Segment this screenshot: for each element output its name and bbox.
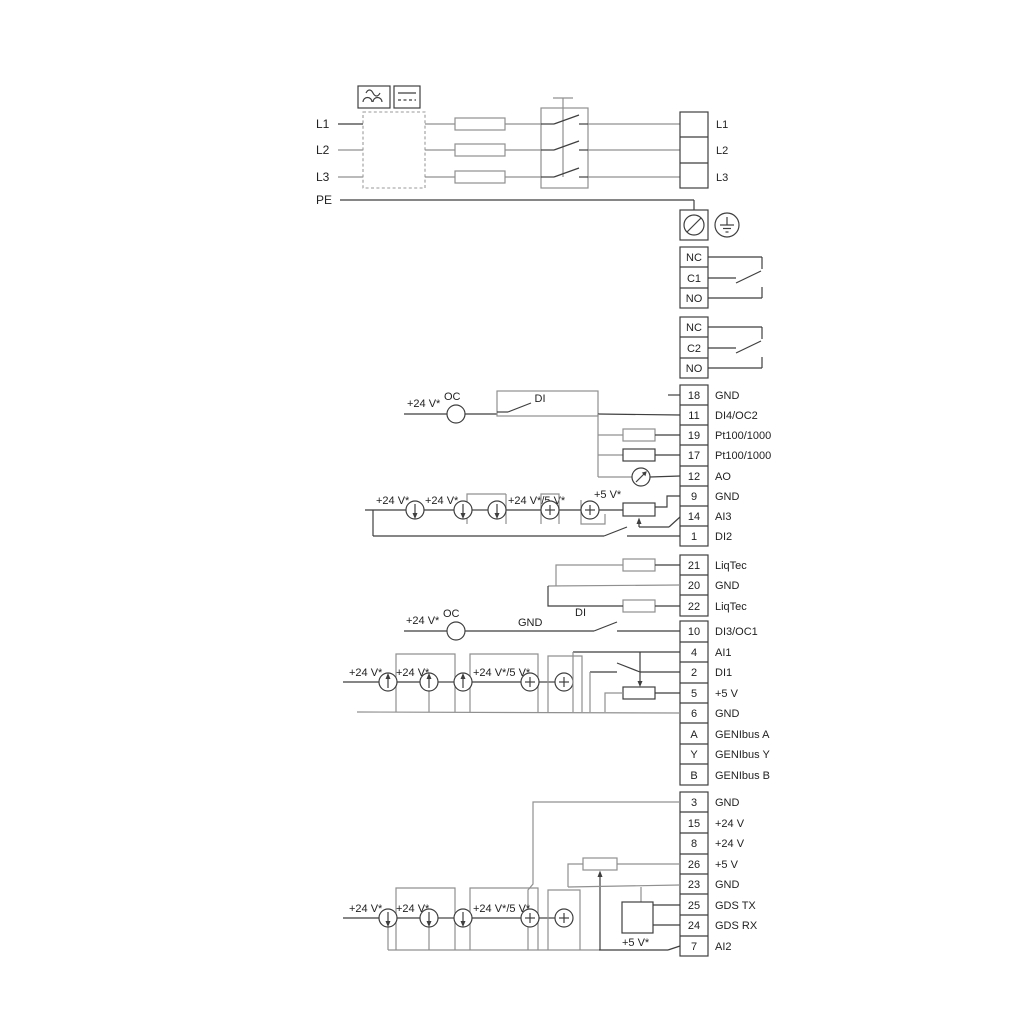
terminal-label: DI4/OC2 — [715, 410, 758, 422]
terminal-row: 24GDS RX — [688, 920, 758, 932]
current-source-icon — [454, 501, 472, 519]
terminal-id: 18 — [688, 390, 700, 402]
voltage-source-icon — [521, 673, 539, 691]
terminal-id: 5 — [691, 688, 697, 700]
open-collector-icon — [447, 622, 465, 640]
terminal-id: 19 — [688, 430, 700, 442]
terminal-id: 2 — [691, 667, 697, 679]
pe-terminal-icon — [680, 210, 708, 240]
input-label-pe: PE — [316, 193, 332, 207]
terminal-id: 24 — [688, 920, 700, 932]
relay1-nc: NC — [686, 252, 702, 264]
terminal-id: 25 — [688, 900, 700, 912]
input-label-l3: L3 — [316, 170, 330, 184]
terminal-label: GND — [715, 390, 740, 402]
terminal-label: +5 V — [715, 688, 739, 700]
terminal-id: 21 — [688, 560, 700, 572]
terminal-label: GND — [715, 797, 740, 809]
terminal-label: AI3 — [715, 511, 732, 523]
current-source-icon — [379, 909, 397, 927]
di3-di-label: DI — [575, 607, 586, 619]
terminal-label: Pt100/1000 — [715, 430, 771, 442]
gds-sensor-box — [622, 902, 653, 933]
di4-v24-label: +24 V* — [407, 398, 441, 410]
terminal-label: +5 V — [715, 859, 739, 871]
relay1-no: NO — [686, 293, 703, 305]
current-source-icon — [454, 909, 472, 927]
terminal-label: DI1 — [715, 667, 732, 679]
terminal-label: AI2 — [715, 941, 732, 953]
voltage-source-icon — [541, 501, 559, 519]
ai2-v5-label: +5 V* — [622, 937, 650, 949]
terminal-id: 26 — [688, 859, 700, 871]
terminal-id: 1 — [691, 531, 697, 543]
terminal-id: 4 — [691, 647, 697, 659]
terminal-row: 21LiqTec — [688, 560, 747, 572]
terminal-label: GDS TX — [715, 900, 756, 912]
background — [0, 0, 1024, 1024]
ac-symbol-icon — [358, 86, 390, 108]
ai3-v5-label: +5 V* — [594, 489, 622, 501]
terminal-label: Pt100/1000 — [715, 450, 771, 462]
relay1-c1: C1 — [687, 273, 701, 285]
voltage-source-icon — [521, 909, 539, 927]
terminal-id: 23 — [688, 879, 700, 891]
voltage-source-icon — [555, 673, 573, 691]
terminal-label: AI1 — [715, 647, 732, 659]
power-terminal-block: L1 L2 L3 — [680, 112, 728, 188]
contactor-icon — [541, 98, 588, 188]
gauge-icon — [632, 468, 650, 486]
terminal-id: 12 — [688, 471, 700, 483]
current-source-icon — [488, 501, 506, 519]
current-source-icon — [379, 673, 397, 691]
output-label-l2: L2 — [716, 145, 728, 157]
terminal-id: 15 — [688, 818, 700, 830]
terminal-label: GDS RX — [715, 920, 758, 932]
dc-symbol-icon — [394, 86, 420, 108]
terminal-label: AO — [715, 471, 731, 483]
voltage-source-icon — [581, 501, 599, 519]
terminal-id: 17 — [688, 450, 700, 462]
terminal-id: 3 — [691, 797, 697, 809]
ai3-v24-label: +24 V* — [376, 495, 410, 507]
relay2-no: NO — [686, 363, 703, 375]
resistor-icon — [623, 600, 655, 612]
terminal-label: GND — [715, 580, 740, 592]
output-label-l3: L3 — [716, 172, 728, 184]
di3-gnd-label: GND — [518, 617, 543, 629]
terminal-label: GND — [715, 708, 740, 720]
terminal-label: LiqTec — [715, 601, 747, 613]
terminal-label: +24 V — [715, 838, 745, 850]
di3-v24-label: +24 V* — [406, 615, 440, 627]
terminal-label: GND — [715, 879, 740, 891]
terminal-label: GENIbus Y — [715, 749, 770, 761]
input-label-l1: L1 — [316, 117, 330, 131]
relay2-nc: NC — [686, 322, 702, 334]
di3-oc-label: OC — [443, 608, 460, 620]
earth-ground-icon — [715, 213, 739, 237]
terminal-id: B — [690, 770, 697, 782]
resistor-icon — [623, 559, 655, 571]
potentiometer-icon — [623, 687, 655, 699]
input-label-l2: L2 — [316, 143, 330, 157]
relay2-c2: C2 — [687, 343, 701, 355]
terminal-label: GENIbus B — [715, 770, 770, 782]
terminal-id: 20 — [688, 580, 700, 592]
terminal-row: 25GDS TX — [688, 900, 757, 912]
terminal-id: 11 — [688, 410, 699, 422]
terminal-label: +24 V — [715, 818, 745, 830]
terminal-id: 22 — [688, 601, 700, 613]
terminal-label: GENIbus A — [715, 729, 770, 741]
ai3-v24-label: +24 V* — [425, 495, 459, 507]
ai2-v24-label: +24 V* — [349, 903, 383, 915]
di4-di-label: DI — [535, 393, 546, 405]
current-source-icon — [454, 673, 472, 691]
wiring-diagram-svg: L1 L2 L3 PE — [0, 0, 1024, 1024]
fuse-icon — [455, 144, 505, 156]
open-collector-icon — [447, 405, 465, 423]
current-source-icon — [420, 673, 438, 691]
di4-oc-label: OC — [444, 391, 461, 403]
terminal-id: 14 — [688, 511, 700, 523]
terminal-id: 9 — [691, 491, 697, 503]
terminal-id: 10 — [688, 626, 700, 638]
fuse-icon — [455, 171, 505, 183]
terminal-row: 22LiqTec — [688, 601, 747, 613]
resistor-icon — [623, 429, 655, 441]
current-source-icon — [420, 909, 438, 927]
terminal-id: 6 — [691, 708, 697, 720]
terminal-id: A — [690, 729, 698, 741]
di-box — [497, 391, 598, 416]
terminal-id: 8 — [691, 838, 697, 850]
terminal-row: 11DI4/OC2 — [688, 410, 758, 422]
voltage-source-icon — [555, 909, 573, 927]
terminal-id: Y — [690, 749, 698, 761]
terminal-row: 10DI3/OC1 — [688, 626, 758, 638]
ai1-v24-label: +24 V* — [349, 667, 383, 679]
terminal-id: 7 — [691, 941, 697, 953]
resistor-icon — [623, 449, 655, 461]
terminal-label: DI3/OC1 — [715, 626, 758, 638]
terminal-label: GND — [715, 491, 740, 503]
terminal-label: LiqTec — [715, 560, 747, 572]
terminal-row: 15+24 V — [688, 818, 745, 830]
output-label-l1: L1 — [716, 119, 728, 131]
fuse-icon — [455, 118, 505, 130]
terminal-label: DI2 — [715, 531, 732, 543]
current-source-icon — [406, 501, 424, 519]
